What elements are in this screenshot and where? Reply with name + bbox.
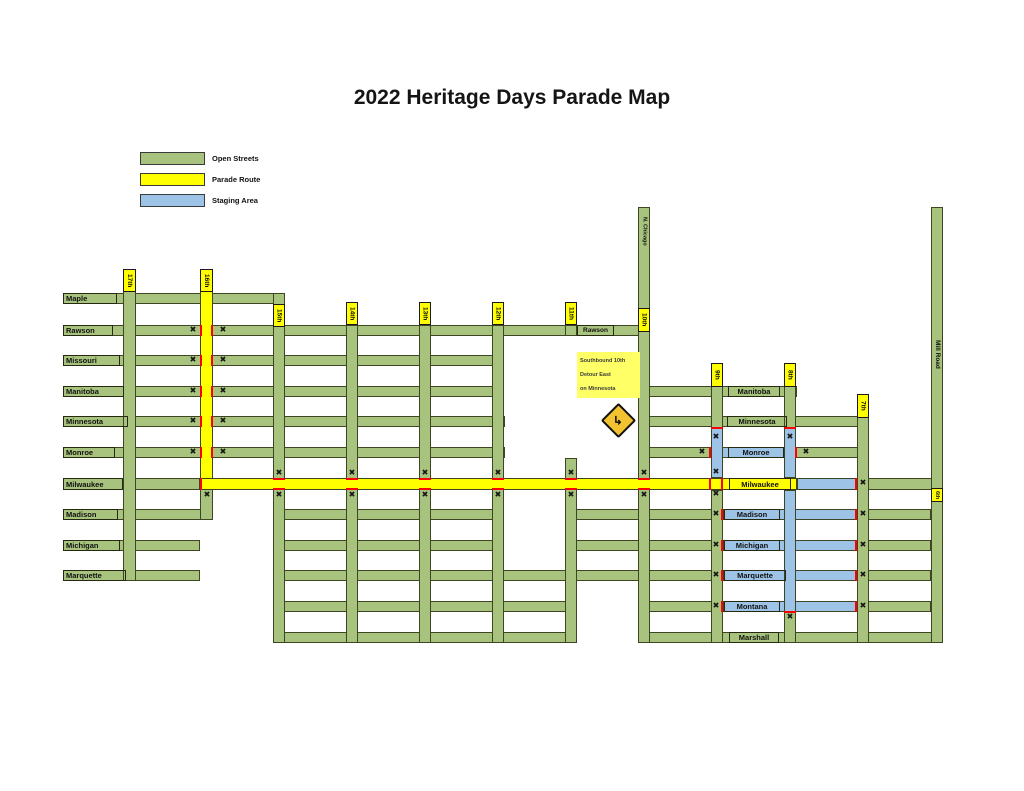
barricade-mark bbox=[211, 355, 213, 366]
closure-x-icon: ✖ bbox=[565, 467, 577, 479]
street-label-michigan: Michigan bbox=[724, 540, 780, 551]
barricade-mark bbox=[709, 447, 711, 458]
closure-x-icon: ✖ bbox=[857, 508, 869, 520]
closure-x-icon: ✖ bbox=[419, 467, 431, 479]
street-17th bbox=[123, 291, 136, 581]
street-label-manitoba: Manitoba bbox=[63, 386, 124, 397]
street-label-marquette: Marquette bbox=[63, 570, 126, 581]
street-label-milwaukee: Milwaukee bbox=[63, 478, 123, 490]
parade-map-page: 2022 Heritage Days Parade Map Open Stree… bbox=[0, 0, 1024, 791]
street-label-michigan: Michigan bbox=[63, 540, 120, 551]
barricade-mark bbox=[211, 386, 213, 397]
closure-x-icon: ✖ bbox=[565, 489, 577, 501]
closure-x-icon: ✖ bbox=[217, 324, 229, 336]
street-9th-north bbox=[711, 386, 723, 428]
street-8th-staging-lower bbox=[784, 490, 796, 612]
street-tag-8th: 8th bbox=[784, 363, 796, 387]
street-madison-mid bbox=[273, 509, 504, 520]
street-tag-6th: 6th bbox=[931, 488, 943, 502]
street-tag-11th: 11th bbox=[565, 302, 577, 325]
barricade-mark bbox=[711, 427, 723, 429]
street-10th-n-chicago bbox=[638, 207, 650, 643]
street-tag-9th: 9th bbox=[711, 363, 723, 387]
street-label-n-chicago: N. Chicago bbox=[639, 208, 650, 254]
barricade-mark bbox=[200, 416, 202, 427]
closure-x-icon: ✖ bbox=[710, 488, 722, 500]
closure-x-icon: ✖ bbox=[710, 569, 722, 581]
street-label-monroe: Monroe bbox=[728, 447, 784, 458]
street-label-milwaukee: Milwaukee bbox=[729, 478, 791, 490]
street-label-madison: Madison bbox=[724, 509, 780, 520]
street-tag-17th: 17th bbox=[123, 269, 136, 292]
closure-x-icon: ✖ bbox=[187, 385, 199, 397]
closure-x-icon: ✖ bbox=[217, 354, 229, 366]
closure-x-icon: ✖ bbox=[273, 489, 285, 501]
barricade-mark bbox=[200, 447, 202, 458]
street-label-marshall: Marshall bbox=[729, 632, 779, 643]
closure-x-icon: ✖ bbox=[273, 467, 285, 479]
turn-arrow-icon: ↳ bbox=[613, 415, 623, 427]
closure-x-icon: ✖ bbox=[784, 431, 796, 443]
street-label-rawson: Rawson bbox=[577, 325, 614, 336]
closure-x-icon: ✖ bbox=[492, 489, 504, 501]
closure-x-icon: ✖ bbox=[857, 600, 869, 612]
detour-sign-icon: ↳ bbox=[601, 403, 636, 438]
street-label-monroe: Monroe bbox=[63, 447, 115, 458]
street-tag-10th: 10th bbox=[638, 308, 650, 332]
closure-x-icon: ✖ bbox=[857, 477, 869, 489]
detour-note-line: Detour East bbox=[580, 368, 640, 382]
closure-x-icon: ✖ bbox=[784, 611, 796, 623]
street-label-missouri: Missouri bbox=[63, 355, 120, 366]
street-label-mill-road: Mill Road bbox=[932, 318, 943, 390]
street-11th-rawson bbox=[565, 325, 577, 336]
closure-x-icon: ✖ bbox=[710, 539, 722, 551]
closure-x-icon: ✖ bbox=[346, 467, 358, 479]
street-label-marquette: Marquette bbox=[724, 570, 786, 581]
closure-x-icon: ✖ bbox=[800, 446, 812, 458]
barricade-mark bbox=[784, 427, 796, 429]
closure-x-icon: ✖ bbox=[187, 415, 199, 427]
barricade-mark bbox=[211, 325, 213, 336]
barricade-mark bbox=[211, 447, 213, 458]
barricade-mark bbox=[200, 325, 202, 336]
street-label-manitoba: Manitoba bbox=[728, 386, 780, 397]
street-label-rawson: Rawson bbox=[63, 325, 113, 336]
closure-x-icon: ✖ bbox=[710, 508, 722, 520]
street-tag-14th: 14th bbox=[346, 302, 358, 325]
closure-x-icon: ✖ bbox=[201, 489, 213, 501]
closure-x-icon: ✖ bbox=[217, 385, 229, 397]
closure-x-icon: ✖ bbox=[187, 446, 199, 458]
closure-x-icon: ✖ bbox=[710, 466, 722, 478]
closure-x-icon: ✖ bbox=[857, 539, 869, 551]
street-milwaukee-staging bbox=[797, 478, 857, 490]
closure-x-icon: ✖ bbox=[346, 489, 358, 501]
barricade-mark bbox=[795, 447, 797, 458]
barricade-mark bbox=[200, 386, 202, 397]
closure-x-icon: ✖ bbox=[187, 354, 199, 366]
closure-x-icon: ✖ bbox=[710, 431, 722, 443]
street-mill-road-6th bbox=[931, 207, 943, 643]
closure-x-icon: ✖ bbox=[638, 467, 650, 479]
closure-x-icon: ✖ bbox=[638, 489, 650, 501]
closure-x-icon: ✖ bbox=[492, 467, 504, 479]
closure-x-icon: ✖ bbox=[217, 446, 229, 458]
closure-x-icon: ✖ bbox=[187, 324, 199, 336]
street-tag-16th: 16th bbox=[200, 269, 213, 292]
street-label-minnesota: Minnesota bbox=[63, 416, 128, 427]
street-tag-15th: 15th bbox=[273, 304, 285, 327]
street-label-madison: Madison bbox=[63, 509, 118, 520]
detour-note-line: Southbound 10th bbox=[580, 354, 640, 368]
closure-x-icon: ✖ bbox=[710, 600, 722, 612]
street-tag-12th: 12th bbox=[492, 302, 504, 325]
barricade-mark bbox=[211, 416, 213, 427]
detour-note-line: on Minnesota bbox=[580, 382, 640, 396]
detour-note: Southbound 10thDetour Easton Minnesota bbox=[577, 352, 640, 398]
closure-x-icon: ✖ bbox=[419, 489, 431, 501]
street-label-montana: Montana bbox=[724, 601, 780, 612]
street-tag-13th: 13th bbox=[419, 302, 431, 325]
street-label-maple: Maple bbox=[63, 293, 117, 304]
closure-x-icon: ✖ bbox=[857, 569, 869, 581]
parade-map: ✖✖✖✖✖✖✖✖✖✖✖✖✖✖✖✖✖✖✖✖✖✖✖✖✖✖✖✖✖✖✖✖✖✖✖✖✖✖✖M… bbox=[0, 0, 1024, 791]
barricade-mark bbox=[200, 355, 202, 366]
street-michigan-mid bbox=[273, 540, 504, 551]
closure-x-icon: ✖ bbox=[696, 446, 708, 458]
closure-x-icon: ✖ bbox=[217, 415, 229, 427]
street-label-minnesota: Minnesota bbox=[727, 416, 787, 427]
street-tag-7th: 7th bbox=[857, 394, 869, 418]
